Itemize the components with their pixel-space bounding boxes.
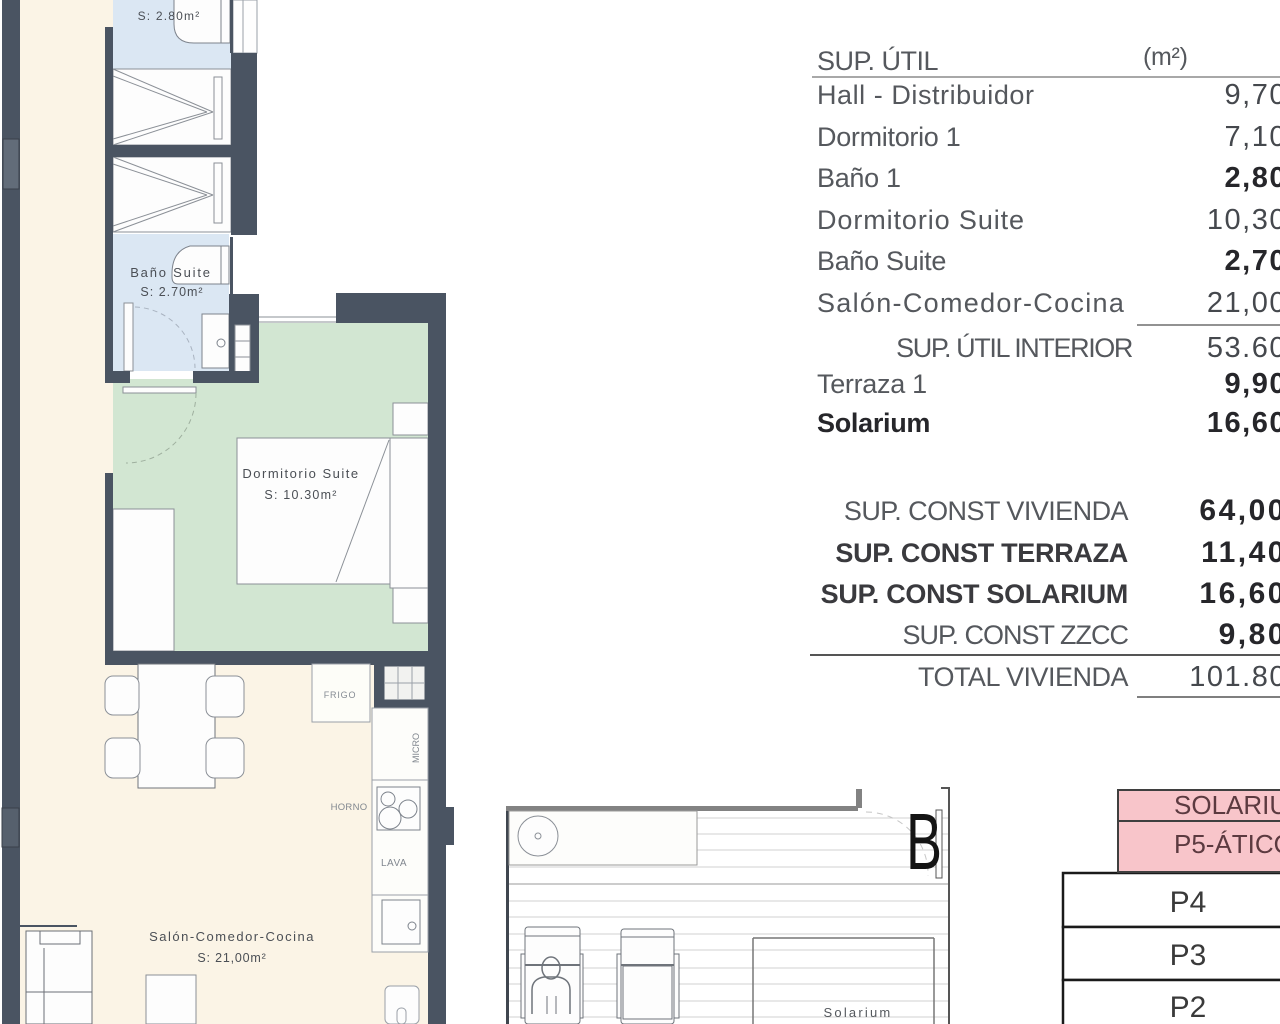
svg-text:P2: P2 [1170, 991, 1207, 1024]
svg-text:11,40: 11,40 [1201, 536, 1280, 569]
svg-text:Baño Suite: Baño Suite [130, 265, 212, 280]
svg-text:SUP. CONST SOLARIUM: SUP. CONST SOLARIUM [821, 579, 1128, 609]
svg-text:9,90: 9,90 [1225, 368, 1280, 400]
svg-text:64,00: 64,00 [1199, 494, 1280, 527]
svg-text:FRIGO: FRIGO [324, 690, 357, 700]
svg-text:S: 2.80m²: S: 2.80m² [138, 9, 201, 23]
svg-text:(m²): (m²) [1143, 43, 1188, 71]
svg-text:9,70: 9,70 [1225, 79, 1280, 111]
svg-text:S: 21,00m²: S: 21,00m² [197, 951, 266, 965]
svg-text:7,10: 7,10 [1225, 121, 1280, 153]
svg-text:SUP. ÚTIL INTERIOR: SUP. ÚTIL INTERIOR [896, 332, 1133, 363]
svg-text:Dormitorio Suite: Dormitorio Suite [242, 466, 359, 481]
svg-text:S: 2.70m²: S: 2.70m² [140, 285, 203, 299]
svg-text:53.60: 53.60 [1207, 332, 1280, 364]
svg-text:2,80: 2,80 [1225, 162, 1280, 194]
svg-text:SUP. CONST TERRAZA: SUP. CONST TERRAZA [835, 538, 1128, 568]
svg-text:MICRO: MICRO [411, 733, 421, 763]
svg-text:SUP. ÚTIL: SUP. ÚTIL [817, 45, 939, 76]
svg-text:B: B [906, 797, 942, 886]
svg-text:10,30: 10,30 [1207, 204, 1280, 236]
svg-text:Salón-Comedor-Cocina: Salón-Comedor-Cocina [817, 288, 1125, 318]
svg-text:Dormitorio 1: Dormitorio 1 [817, 122, 960, 152]
svg-text:Solarium: Solarium [817, 408, 930, 438]
svg-text:P5-ÁTICO: P5-ÁTICO [1174, 829, 1280, 859]
svg-text:P3: P3 [1170, 939, 1207, 972]
svg-text:SUP. CONST VIVIENDA: SUP. CONST VIVIENDA [844, 496, 1129, 526]
svg-text:P4: P4 [1170, 886, 1207, 919]
svg-text:SOLARIUM: SOLARIUM [1174, 790, 1280, 820]
svg-text:Terraza 1: Terraza 1 [817, 369, 927, 399]
svg-text:21,00: 21,00 [1207, 287, 1280, 319]
svg-text:Salón-Comedor-Cocina: Salón-Comedor-Cocina [149, 929, 315, 944]
svg-text:16,60: 16,60 [1199, 577, 1280, 610]
svg-text:Hall - Distribuidor: Hall - Distribuidor [817, 80, 1035, 110]
svg-text:Baño Suite: Baño Suite [817, 246, 946, 276]
svg-text:101.80: 101.80 [1189, 661, 1280, 693]
svg-text:16,60: 16,60 [1207, 407, 1280, 439]
svg-text:LAVA: LAVA [381, 858, 407, 869]
svg-text:S: 10.30m²: S: 10.30m² [264, 488, 337, 502]
svg-text:Baño 1: Baño 1 [817, 163, 901, 193]
svg-text:HORNO: HORNO [331, 802, 368, 813]
svg-text:SUP. CONST ZZCC: SUP. CONST ZZCC [902, 620, 1128, 650]
svg-text:2,70: 2,70 [1225, 245, 1280, 277]
svg-text:9,80: 9,80 [1219, 618, 1280, 651]
svg-text:Dormitorio Suite: Dormitorio Suite [817, 205, 1025, 235]
svg-text:Solarium: Solarium [824, 1005, 893, 1020]
svg-text:TOTAL VIVIENDA: TOTAL VIVIENDA [918, 662, 1129, 692]
